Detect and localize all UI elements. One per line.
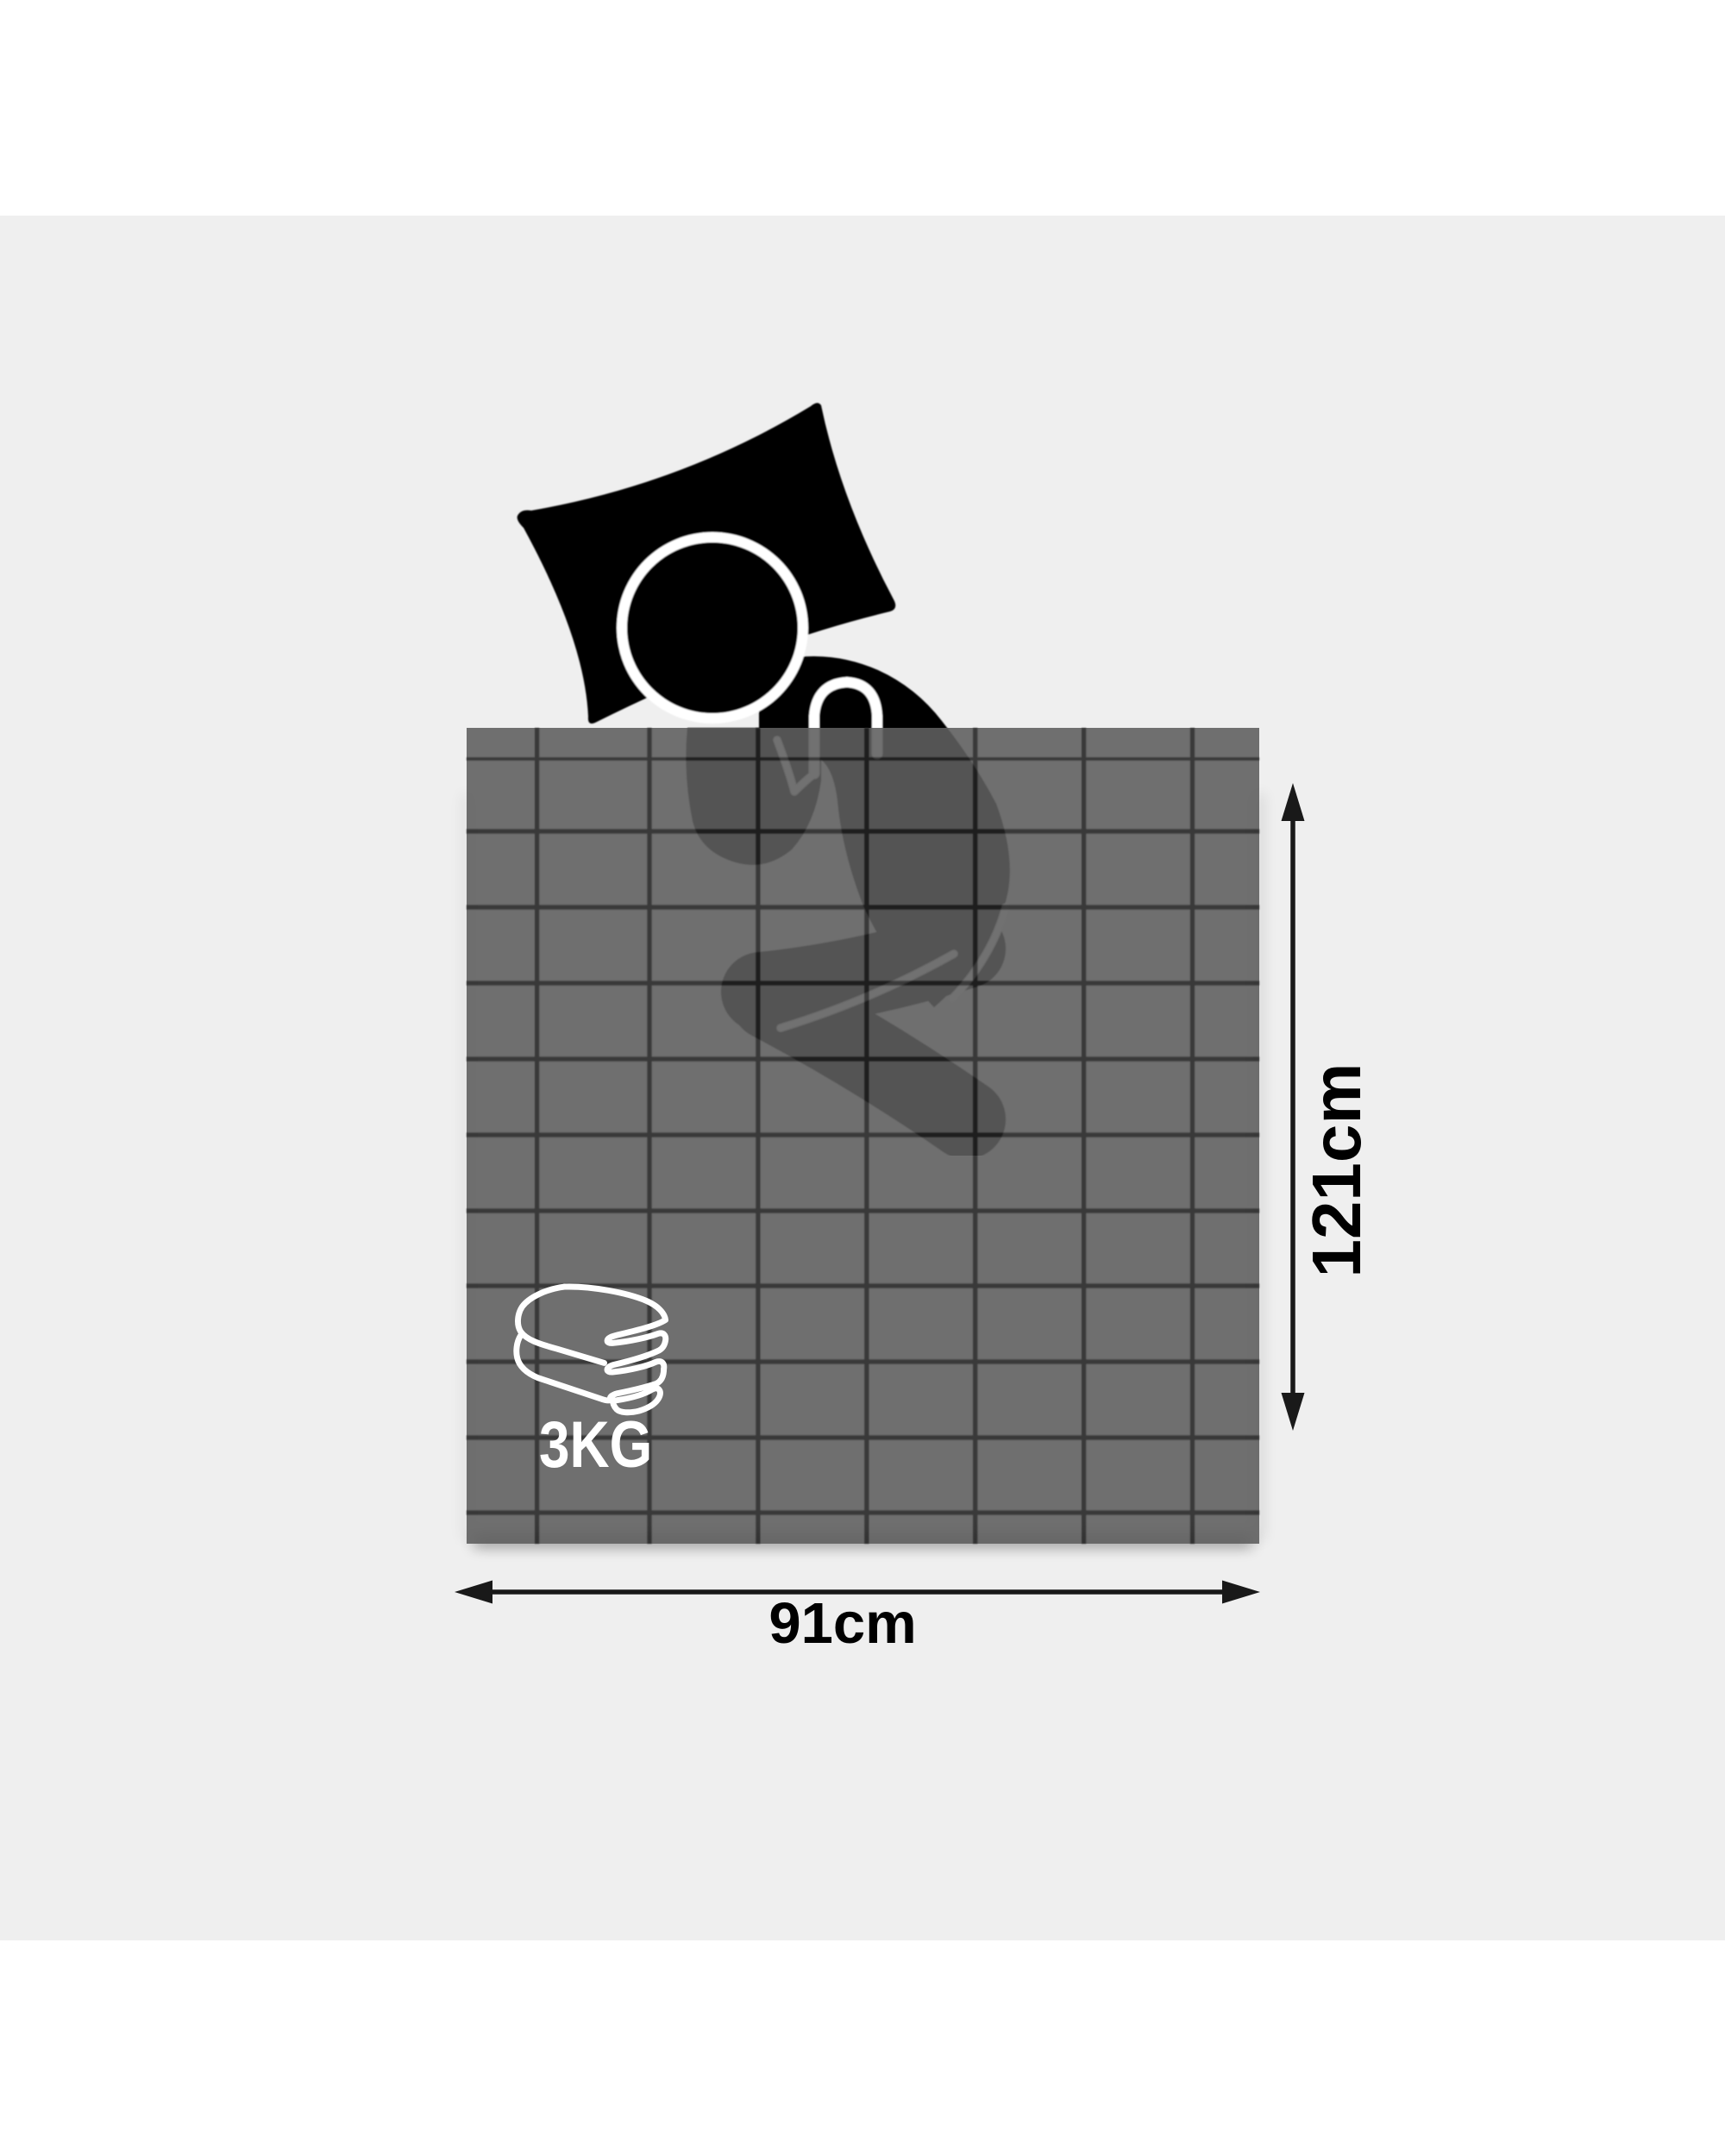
svg-text:3KG: 3KG [539, 1407, 652, 1482]
svg-text:91cm: 91cm [768, 1591, 916, 1656]
svg-text:121cm: 121cm [1298, 1062, 1375, 1277]
